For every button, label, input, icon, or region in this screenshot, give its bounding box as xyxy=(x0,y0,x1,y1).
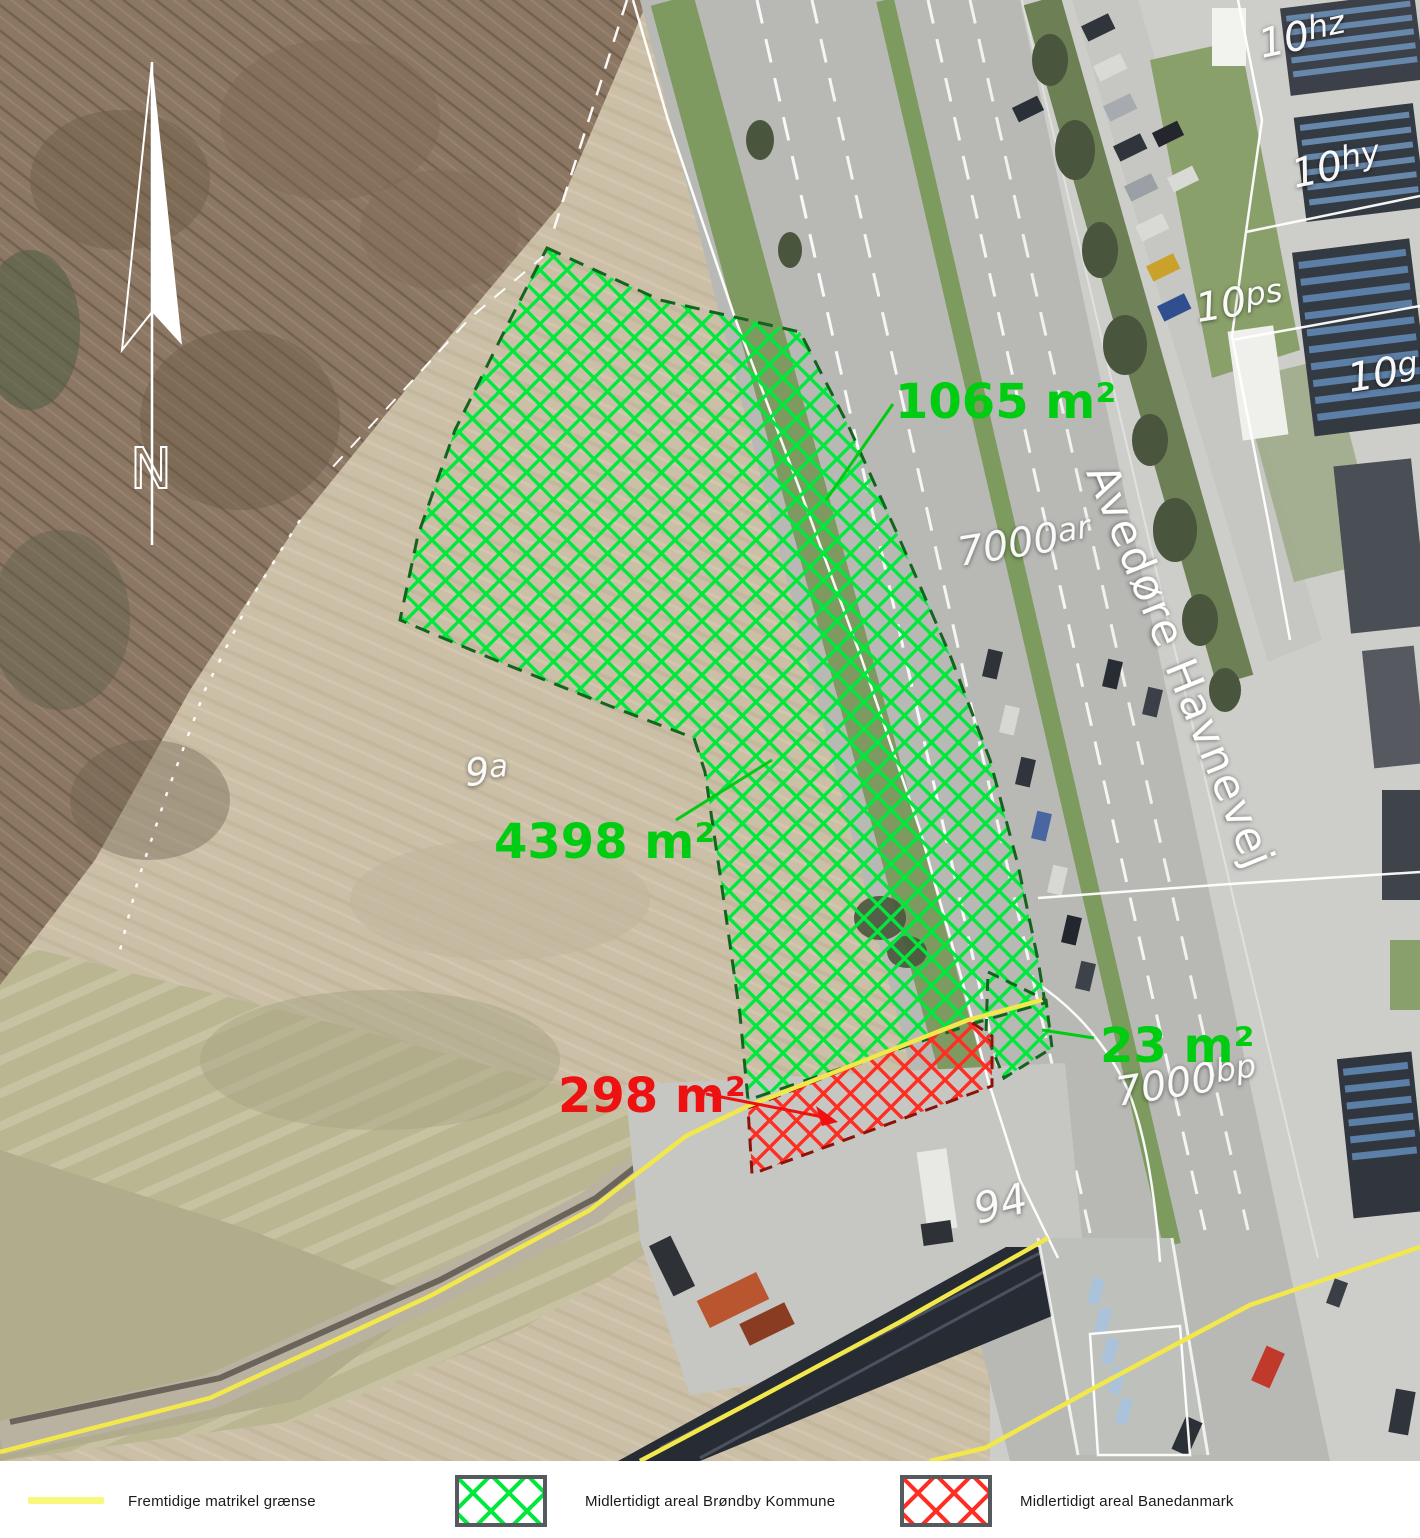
legend-item-yellow-label: Fremtidige matrikel grænse xyxy=(128,1493,316,1510)
red-hatch-swatch xyxy=(900,1475,992,1527)
legend-label: Fremtidige matrikel grænse xyxy=(128,1493,316,1510)
legend-item-red-label: Midlertidigt areal Banedanmark xyxy=(1020,1493,1234,1510)
legend-item-yellow xyxy=(28,1497,104,1504)
legend-item-green xyxy=(455,1475,547,1527)
green-hatch-swatch xyxy=(455,1475,547,1527)
area-label-298: 298 m² xyxy=(558,1068,746,1124)
yellow-line-swatch xyxy=(28,1497,104,1504)
legend-item-red xyxy=(900,1475,992,1527)
legend-label: Midlertidigt areal Brøndby Kommune xyxy=(585,1493,835,1510)
legend: Fremtidige matrikel grænse Midlertidigt … xyxy=(0,1461,1420,1538)
area-label-1065: 1065 m² xyxy=(895,374,1116,430)
aerial-map: N 10hz 10hy 10ps 10gb 7000ar 7000bp 9a 9… xyxy=(0,0,1420,1461)
map-figure: N 10hz 10hy 10ps 10gb 7000ar 7000bp 9a 9… xyxy=(0,0,1420,1538)
legend-label: Midlertidigt areal Banedanmark xyxy=(1020,1493,1234,1510)
area-label-23: 23 m² xyxy=(1100,1018,1255,1074)
legend-item-green-label: Midlertidigt areal Brøndby Kommune xyxy=(585,1493,835,1510)
north-letter: N xyxy=(130,437,172,502)
area-label-4398: 4398 m² xyxy=(494,814,715,870)
